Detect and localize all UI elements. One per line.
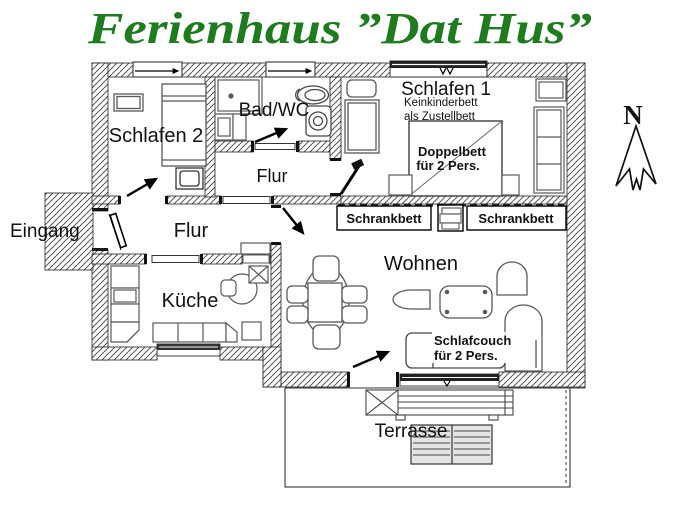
svg-text:Flur: Flur <box>257 166 288 186</box>
svg-text:N: N <box>623 100 643 130</box>
svg-text:Flur: Flur <box>174 220 209 242</box>
svg-text:Eingang: Eingang <box>10 221 80 242</box>
svg-text:Schrankbett: Schrankbett <box>346 211 422 226</box>
svg-text:für 2 Pers.: für 2 Pers. <box>434 348 498 363</box>
svg-text:Terrasse: Terrasse <box>375 421 448 442</box>
svg-text:Ferienhaus ”Dat Hus”: Ferienhaus ”Dat Hus” <box>87 4 592 53</box>
svg-text:Bad/WC: Bad/WC <box>239 100 310 121</box>
svg-text:Küche: Küche <box>162 290 219 312</box>
svg-text:Schlafen 2: Schlafen 2 <box>109 125 204 147</box>
svg-text:für 2 Pers.: für 2 Pers. <box>416 158 480 173</box>
svg-text:Doppelbett: Doppelbett <box>418 144 487 159</box>
svg-text:Keinkinderbett: Keinkinderbett <box>404 97 478 109</box>
svg-text:Wohnen: Wohnen <box>384 253 458 275</box>
svg-text:Schlafcouch: Schlafcouch <box>434 333 511 348</box>
svg-text:als Zustellbett: als Zustellbett <box>404 111 476 123</box>
svg-text:Schrankbett: Schrankbett <box>478 211 554 226</box>
